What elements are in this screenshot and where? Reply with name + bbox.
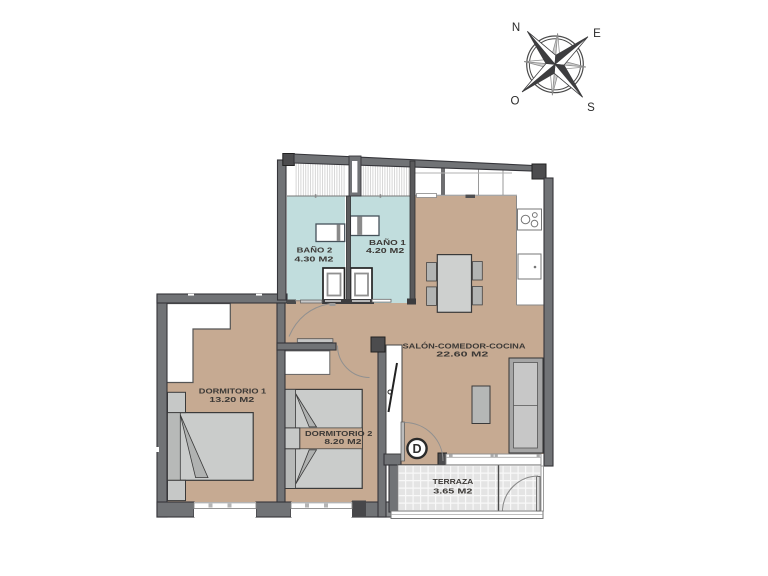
svg-text:BAÑO 2: BAÑO 2 xyxy=(297,246,333,255)
svg-text:S: S xyxy=(587,102,595,114)
svg-text:22.60 M2: 22.60 M2 xyxy=(436,352,488,359)
svg-text:DORMITORIO 1: DORMITORIO 1 xyxy=(199,389,267,396)
svg-text:SALÓN-COMEDOR-COCINA: SALÓN-COMEDOR-COCINA xyxy=(403,342,526,351)
svg-text:13.20 M2: 13.20 M2 xyxy=(209,397,254,404)
svg-text:4.20 M2: 4.20 M2 xyxy=(366,248,404,255)
svg-text:BAÑO 1: BAÑO 1 xyxy=(369,238,406,247)
svg-text:N: N xyxy=(512,22,520,34)
svg-text:O: O xyxy=(511,96,520,108)
svg-text:4.30 M2: 4.30 M2 xyxy=(294,257,333,264)
svg-text:8.20 M2: 8.20 M2 xyxy=(324,439,361,446)
svg-text:3.65 M2: 3.65 M2 xyxy=(433,488,472,495)
svg-text:DORMITORIO 2: DORMITORIO 2 xyxy=(305,431,373,438)
svg-text:D: D xyxy=(412,442,421,456)
svg-text:E: E xyxy=(593,28,601,40)
svg-text:TERRAZA: TERRAZA xyxy=(433,479,474,486)
